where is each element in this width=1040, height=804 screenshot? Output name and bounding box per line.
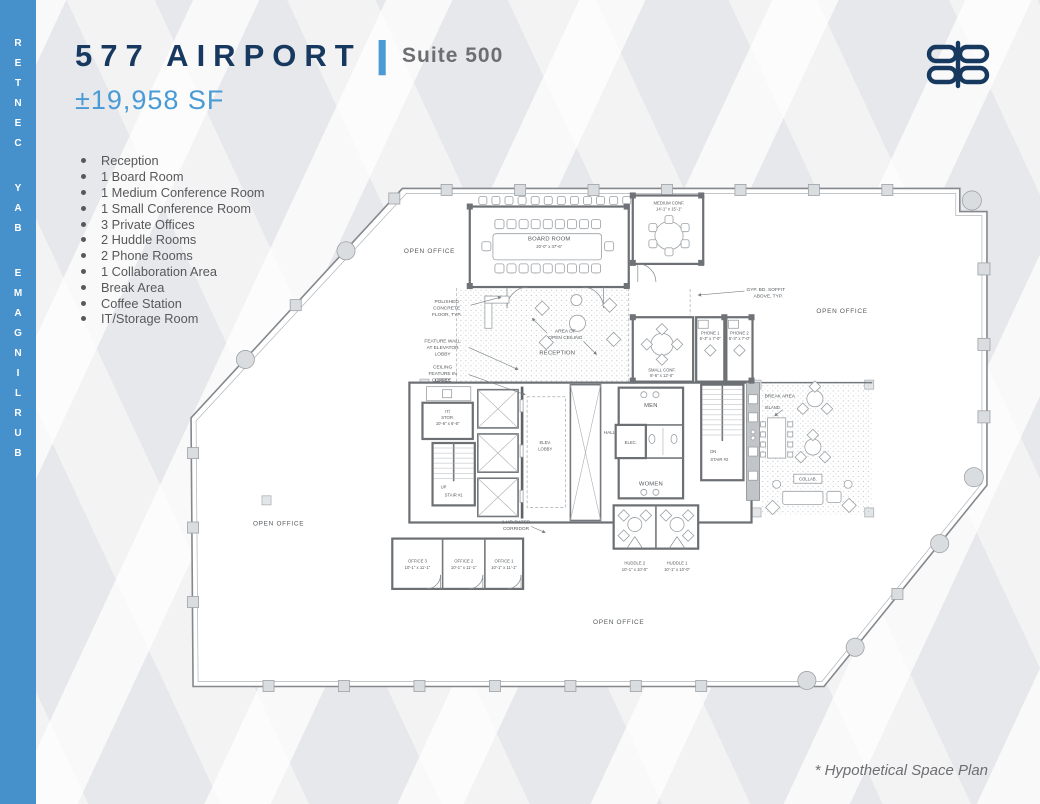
hall-label: HALL [604, 430, 616, 436]
page-title: 577 AIRPORT [75, 38, 362, 74]
men-room-label: MEN [644, 403, 658, 409]
board-room-dims: 20'-0" x 37'-6" [536, 244, 562, 249]
open-office-label-left: OPEN OFFICE [253, 521, 304, 528]
bullet-icon [81, 206, 86, 211]
gyp-soffit-note: GYP. BD. SOFFIT [746, 287, 785, 293]
huddle-1-dims: 10'-1" x 10'-0" [664, 567, 690, 572]
open-ceiling-note: AREA OF [555, 328, 576, 334]
bullet-icon [81, 237, 86, 242]
medium-conf-dims: 14'-1" x 15'-1" [656, 207, 682, 212]
title-divider: | [374, 36, 390, 73]
board-room-label: BOARD ROOM [528, 237, 571, 243]
building-core: COFFEE IT/ STOR. 10'-6" x 6'-6" UP STAIR… [409, 378, 759, 523]
medium-conf-label: MEDIUM CONF. [654, 201, 685, 206]
small-conf-dims: 8'-6" x 12'-0" [650, 373, 674, 378]
office-2-label: OFFICE 2 [454, 559, 474, 564]
svg-text:LOBBY: LOBBY [435, 378, 452, 384]
reception-label: RECEPTION [539, 350, 575, 356]
svg-text:LOBBY: LOBBY [435, 351, 452, 357]
bullet-icon [81, 190, 86, 195]
stair-2-label: STAIR #2 [710, 457, 729, 462]
huddle-2-label: HUDDLE 2 [624, 561, 646, 566]
square-footage-label: ±19,958 SF [75, 85, 503, 116]
open-office-label-right: OPEN OFFICE [816, 308, 867, 315]
rated-corridor-note: 1-HR RATED [502, 520, 531, 526]
sidebar-band: RETNEC YAB EMAGNILRUB [0, 0, 36, 804]
elev-lobby-label-2: LOBBY [538, 447, 552, 452]
header: 577 AIRPORT | Suite 500 ±19,958 SF [75, 38, 503, 116]
collab-label: COLLAB. [799, 477, 817, 482]
bullet-icon [81, 222, 86, 227]
svg-text:FEATURE IN: FEATURE IN [428, 371, 457, 377]
svg-text:AT ELEVATOR: AT ELEVATOR [427, 345, 459, 351]
feature-wall-note: FEATURE WALL [424, 338, 461, 344]
huddle-1-label: HUDDLE 1 [667, 561, 689, 566]
it-storage-label-2: STOR. [441, 415, 454, 420]
polished-concrete-note: POLISHED [434, 299, 459, 305]
break-area-label: BREAK AREA [765, 394, 796, 400]
bullet-icon [81, 316, 86, 321]
office-3-dims: 10'-1" x 11'-1" [405, 565, 431, 570]
women-room-label: WOMEN [639, 481, 663, 487]
suite-label: Suite 500 [402, 44, 503, 68]
bullet-icon [81, 301, 86, 306]
office-3-label: OFFICE 3 [408, 559, 428, 564]
office-1-label: OFFICE 1 [494, 559, 514, 564]
it-storage-dims: 10'-6" x 6'-6" [436, 421, 460, 426]
elec-room-label: ELEC. [625, 440, 637, 445]
bullet-icon [81, 269, 86, 274]
open-office-label-top: OPEN OFFICE [404, 248, 455, 255]
phone-2-label: PHONE 2 [730, 330, 749, 335]
svg-text:FLOOR, TYP.: FLOOR, TYP. [432, 312, 461, 318]
list-item: Reception [78, 153, 265, 169]
svg-text:OPEN CEILING: OPEN CEILING [548, 335, 582, 341]
island-label: ISLAND [765, 405, 780, 410]
stair-1-direction: UP [441, 484, 447, 489]
elev-lobby-label-1: ELEV. [539, 440, 551, 445]
private-offices: OFFICE 3 10'-1" x 11'-1" OFFICE 2 10'-1"… [392, 539, 523, 589]
bullet-icon [81, 174, 86, 179]
eb-monogram-icon [925, 40, 991, 90]
bullet-icon [81, 253, 86, 258]
bullet-icon [81, 158, 86, 163]
office-2-dims: 10'-1" x 11'-1" [451, 565, 477, 570]
small-conf-label: SMALL CONF. [648, 368, 676, 373]
floor-plan: BOARD ROOM 20'-0" x 37'-6" MEDIUM CONF. … [183, 183, 993, 702]
svg-text:ABOVE, TYP.: ABOVE, TYP. [754, 294, 783, 300]
phone-2-dims: 6'-3" x 7'-0" [729, 336, 751, 341]
office-1-dims: 10'-1" x 11'-1" [491, 565, 517, 570]
it-storage-label-1: IT/ [445, 409, 451, 414]
bullet-icon [81, 285, 86, 290]
building-center-label: RETNEC YAB EMAGNILRUB [13, 38, 24, 804]
phone-1-label: PHONE 1 [701, 330, 720, 335]
huddle-2-dims: 10'-1" x 10'-0" [622, 567, 648, 572]
svg-text:CORRIDOR: CORRIDOR [503, 526, 530, 532]
svg-text:CONCRETE: CONCRETE [433, 306, 460, 312]
phone-1-dims: 6'-3" x 7'-0" [700, 336, 722, 341]
open-office-label-bottom: OPEN OFFICE [593, 619, 644, 626]
small-conf-and-phone-rooms: SMALL CONF. 8'-6" x 12'-0" PHONE 1 6'-3"… [633, 317, 753, 381]
flyer-page: RETNEC YAB EMAGNILRUB 577 AIRPORT | Suit… [0, 0, 1040, 804]
ceiling-feature-note: CEILING [433, 365, 453, 371]
hypothetical-note: * Hypothetical Space Plan [815, 762, 988, 779]
stair-2-direction: DN [710, 449, 716, 454]
stair-1-label: STAIR #1 [445, 492, 464, 497]
